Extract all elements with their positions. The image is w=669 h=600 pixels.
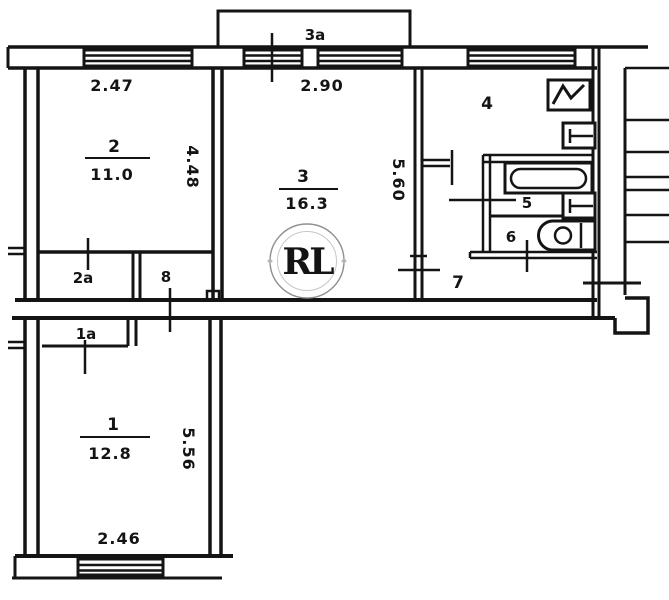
room2-number-label: 2 — [108, 137, 120, 157]
floor-plan: 3a 2.47 2 11.0 4.48 2.90 3 16.3 5.60 4 5… — [0, 0, 669, 600]
window-room1 — [78, 559, 163, 575]
room3-height-dim: 5.60 — [389, 158, 408, 201]
toilet-number-label: 6 — [506, 228, 516, 246]
window-balcony-right — [318, 50, 402, 66]
bathroom-sink-icon — [563, 193, 595, 218]
window-room2 — [84, 50, 192, 66]
exterior-wall-left — [8, 68, 38, 556]
room3-area-label: 16.3 — [285, 194, 328, 213]
balcony-label: 3a — [305, 26, 326, 44]
bathroom-number-label: 5 — [522, 194, 532, 212]
floor-plan-canvas: 3a 2.47 2 11.0 4.48 2.90 3 16.3 5.60 4 5… — [0, 0, 669, 600]
toilet-icon — [539, 221, 596, 250]
apartment-right-wall — [593, 48, 599, 318]
rl-watermark-text: RL — [282, 241, 334, 283]
wall-room2-room3 — [213, 68, 222, 300]
room2-height-dim: 4.48 — [183, 145, 202, 188]
closet-2a-label: 2a — [73, 269, 94, 287]
hallway-number-label: 7 — [452, 273, 464, 293]
wall-room3-hallway — [410, 68, 427, 300]
bathtub-icon — [505, 163, 592, 193]
wall-2a-8-divider — [133, 252, 140, 300]
wall-room1-right — [210, 320, 221, 556]
room3-width-dim: 2.90 — [300, 76, 343, 95]
room3-number-label: 3 — [297, 167, 309, 187]
room2-area-label: 11.0 — [90, 165, 133, 184]
window-kitchen — [468, 50, 575, 66]
kitchen-number-label: 4 — [481, 94, 493, 114]
room1-height-dim: 5.56 — [179, 427, 198, 470]
room1-number-label: 1 — [107, 415, 119, 435]
staircase — [615, 68, 669, 333]
kitchen-sink-icon — [563, 123, 595, 148]
room2-width-dim: 2.47 — [90, 76, 133, 95]
hall-8-label: 8 — [161, 268, 171, 286]
room1-width-dim: 2.46 — [97, 529, 140, 548]
rl-watermark: RL — [267, 224, 347, 298]
room1-area-label: 12.8 — [88, 444, 131, 463]
stove-icon — [548, 80, 590, 110]
closet-1a-label: 1a — [76, 325, 97, 343]
